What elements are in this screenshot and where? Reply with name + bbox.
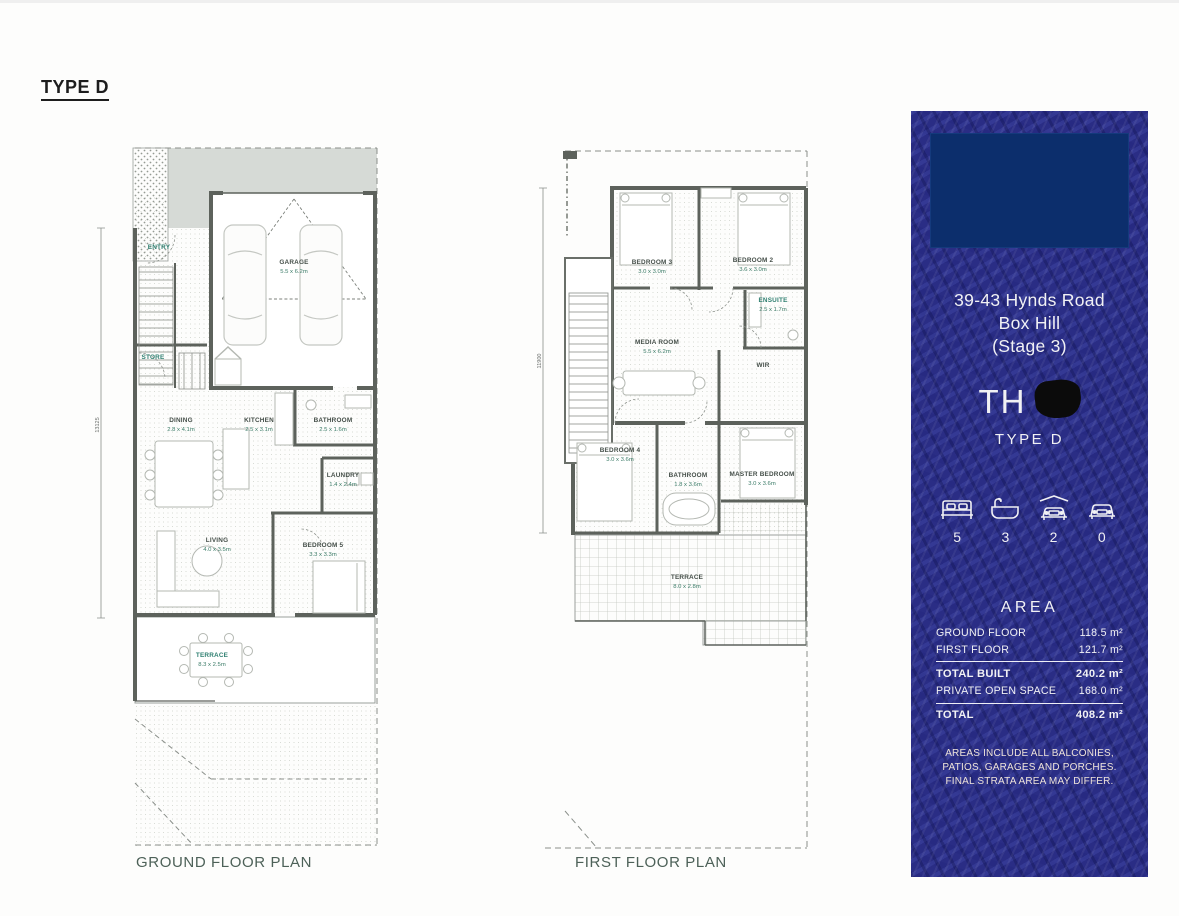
- unit-prefix: TH: [979, 383, 1027, 421]
- room-gbathroom-dims: 2.5 x 1.6m: [319, 427, 347, 433]
- disclaimer-line3: FINAL STRATA AREA MAY DIFFER.: [925, 775, 1134, 789]
- logo-placeholder: [930, 133, 1129, 248]
- unit-number: TH: [911, 383, 1148, 421]
- room-fterrace-label: TERRACE: [671, 574, 704, 581]
- room-laundry-label: LAUNDRY: [327, 472, 360, 479]
- room-dining-dims: 2.8 x 4.1m: [167, 427, 195, 433]
- terrace-floor: [135, 617, 375, 703]
- driveway-side: [168, 148, 212, 228]
- room-entry-label: ENTRY: [148, 244, 171, 251]
- area-value: 168.0 m²: [1079, 685, 1123, 697]
- area-row-open-space: PRIVATE OPEN SPACE 168.0 m²: [936, 683, 1123, 700]
- room-ensuite-label: ENSUITE: [758, 297, 788, 304]
- address-line2: Box Hill: [911, 312, 1148, 335]
- area-row-total: TOTAL 408.2 m²: [936, 707, 1123, 724]
- terrace-tiles-upper: [721, 505, 806, 535]
- ground-side-dimension: 13125: [95, 417, 101, 432]
- garage-count: 2: [1050, 529, 1058, 545]
- room-garage-label: GARAGE: [279, 259, 309, 266]
- disclaimer-line2: PATIOS, GARAGES AND PORCHES.: [925, 761, 1134, 775]
- area-value: 240.2 m²: [1076, 668, 1123, 680]
- area-value: 118.5 m²: [1080, 627, 1123, 639]
- area-label: GROUND FLOOR: [936, 627, 1026, 639]
- first-side-dimension: 11900: [537, 354, 543, 369]
- disclaimer: AREAS INCLUDE ALL BALCONIES, PATIOS, GAR…: [925, 747, 1134, 790]
- stairs-lower: [179, 353, 205, 389]
- divider: [936, 661, 1123, 662]
- bed-icon: [939, 495, 975, 522]
- room-laundry-dims: 1.4 x 2.4m: [329, 482, 357, 488]
- room-bedroom3-dims: 3.0 x 3.0m: [638, 269, 666, 275]
- room-gterrace-label: TERRACE: [196, 652, 229, 659]
- bedroom-count: 5: [953, 529, 961, 545]
- room-fterrace-dims: 8.0 x 2.8m: [673, 584, 701, 590]
- area-value: 408.2 m²: [1076, 709, 1123, 721]
- car-icon: [1084, 495, 1120, 522]
- room-living-label: LIVING: [206, 537, 229, 544]
- disclaimer-line1: AREAS INCLUDE ALL BALCONIES,: [925, 747, 1134, 761]
- address-line1: 39-43 Hynds Road: [911, 289, 1148, 312]
- awning-post: [563, 151, 577, 159]
- room-bedroom3-label: BEDROOM 3: [632, 259, 673, 266]
- room-bedroom2-dims: 3.6 x 3.0m: [739, 267, 767, 273]
- feature-carspace: 0: [1084, 495, 1120, 545]
- features-row: 5 3: [911, 495, 1148, 545]
- area-row-ground: GROUND FLOOR 118.5 m²: [936, 624, 1123, 641]
- address-line3: (Stage 3): [911, 335, 1148, 358]
- redacted-unit-number: [1032, 377, 1082, 420]
- area-value: 121.7 m²: [1079, 644, 1123, 656]
- type-label: TYPE D: [911, 431, 1148, 448]
- feature-bedrooms: 5: [939, 495, 975, 545]
- room-bedroom5-dims: 3.3 x 3.3m: [309, 552, 337, 558]
- dimension-line: 13125: [95, 228, 105, 618]
- room-gterrace-dims: 8.3 x 2.5m: [198, 662, 226, 668]
- feature-bathrooms: 3: [987, 495, 1023, 545]
- area-label: TOTAL BUILT: [936, 668, 1011, 680]
- room-bedroom4-dims: 3.0 x 3.6m: [606, 457, 634, 463]
- room-fbathroom-dims: 1.8 x 3.6m: [674, 482, 702, 488]
- area-label: PRIVATE OPEN SPACE: [936, 685, 1056, 697]
- ground-floor-caption: GROUND FLOOR PLAN: [136, 854, 312, 871]
- terrace-notch: [703, 621, 806, 645]
- divider: [936, 703, 1123, 704]
- area-table: GROUND FLOOR 118.5 m² FIRST FLOOR 121.7 …: [936, 624, 1123, 724]
- room-ensuite-dims: 2.5 x 1.7m: [759, 307, 787, 313]
- room-bedroom4-label: BEDROOM 4: [600, 447, 641, 454]
- area-label: TOTAL: [936, 709, 974, 721]
- room-kitchen-label: KITCHEN: [244, 417, 274, 424]
- bath-icon: [987, 495, 1023, 522]
- first-floor-plan: 11900 BEDROOM 3 3.0 x 3.0m BEDROOM 2 3.6…: [535, 143, 825, 878]
- stairs: [139, 267, 173, 385]
- room-master-dims: 3.0 x 3.6m: [748, 481, 776, 487]
- area-label: FIRST FLOOR: [936, 644, 1009, 656]
- bathroom-count: 3: [1001, 529, 1009, 545]
- area-title: AREA: [911, 599, 1148, 617]
- ground-floor-plan: 13125 ENTRY STORE GARAGE 5.5 x 6.2m DINI…: [95, 143, 385, 878]
- dimension-line: 11900: [537, 188, 547, 533]
- room-media-label: MEDIA ROOM: [635, 339, 679, 346]
- area-row-first: FIRST FLOOR 121.7 m²: [936, 641, 1123, 658]
- floorplan-sheet: TYPE D: [0, 0, 1179, 916]
- carspace-count: 0: [1098, 529, 1106, 545]
- address-block: 39-43 Hynds Road Box Hill (Stage 3): [911, 289, 1148, 358]
- room-bedroom2-label: BEDROOM 2: [733, 257, 774, 264]
- room-master-label: MASTER BEDROOM: [730, 471, 795, 478]
- room-living-dims: 4.0 x 3.5m: [203, 547, 231, 553]
- first-floor-caption: FIRST FLOOR PLAN: [575, 854, 727, 871]
- area-row-total-built: TOTAL BUILT 240.2 m²: [936, 665, 1123, 682]
- room-wir-label: WIR: [756, 362, 769, 369]
- room-garage-dims: 5.5 x 6.2m: [280, 269, 308, 275]
- room-gbathroom-label: BATHROOM: [314, 417, 353, 424]
- room-store-label: STORE: [142, 354, 165, 361]
- room-fbathroom-label: BATHROOM: [669, 472, 708, 479]
- room-kitchen-dims: 2.5 x 3.1m: [245, 427, 273, 433]
- room-media-dims: 5.5 x 6.2m: [643, 349, 671, 355]
- room-bedroom5-label: BEDROOM 5: [303, 542, 344, 549]
- garage-icon: [1036, 495, 1072, 522]
- room-dining-label: DINING: [169, 417, 193, 424]
- feature-garage: 2: [1036, 495, 1072, 545]
- stairs: [569, 293, 608, 453]
- page-title: TYPE D: [41, 77, 109, 101]
- info-panel: 39-43 Hynds Road Box Hill (Stage 3) TH T…: [911, 111, 1148, 877]
